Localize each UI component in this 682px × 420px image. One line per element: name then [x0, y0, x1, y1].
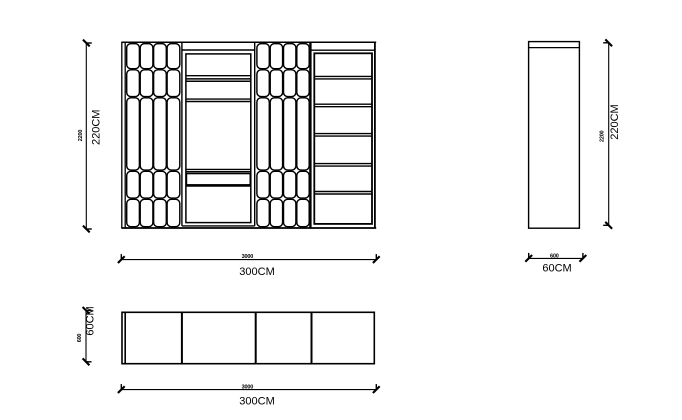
svg-text:300CM: 300CM — [239, 266, 274, 278]
svg-text:2200: 2200 — [600, 130, 606, 142]
svg-text:60CM: 60CM — [542, 262, 571, 274]
svg-text:220CM: 220CM — [609, 104, 621, 139]
svg-text:600: 600 — [550, 254, 559, 260]
svg-text:60CM: 60CM — [85, 306, 97, 335]
svg-text:220CM: 220CM — [90, 110, 102, 145]
svg-text:3000: 3000 — [242, 384, 254, 390]
svg-text:300CM: 300CM — [239, 395, 274, 407]
svg-text:3000: 3000 — [242, 254, 254, 260]
svg-text:2200: 2200 — [78, 130, 84, 142]
svg-text:600: 600 — [77, 334, 83, 343]
